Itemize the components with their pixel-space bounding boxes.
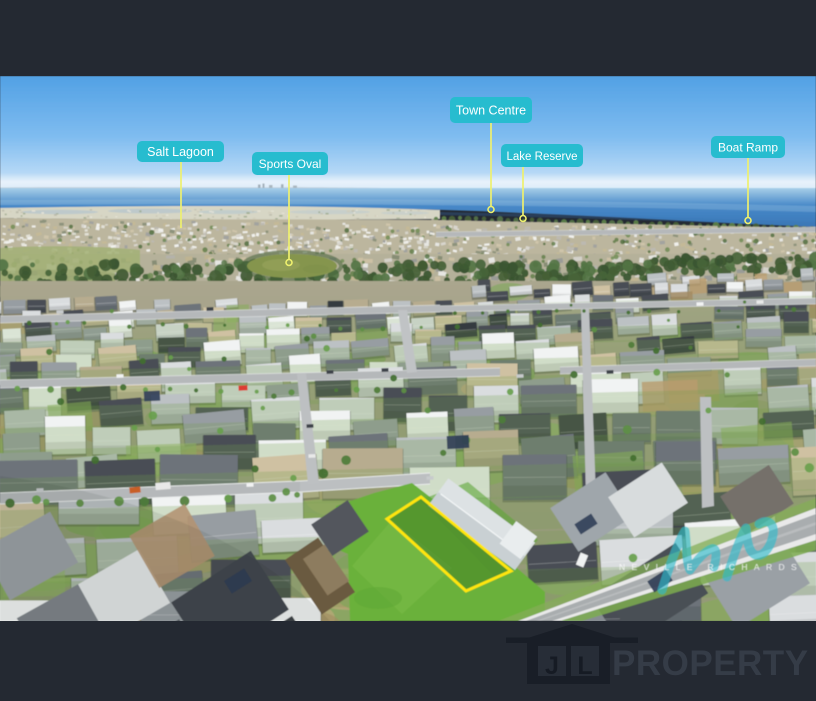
svg-text:Salt Lagoon: Salt Lagoon (147, 145, 214, 159)
svg-text:Boat Ramp: Boat Ramp (718, 140, 778, 154)
svg-text:PROPERTY: PROPERTY (612, 644, 809, 683)
svg-text:Town Centre: Town Centre (456, 103, 526, 117)
svg-text:L: L (577, 652, 592, 680)
svg-text:NEVILLE RICHARDS: NEVILLE RICHARDS (619, 562, 803, 572)
svg-text:J: J (545, 652, 559, 680)
svg-text:Lake Reserve: Lake Reserve (507, 151, 578, 163)
svg-text:Sports Oval: Sports Oval (259, 157, 322, 171)
